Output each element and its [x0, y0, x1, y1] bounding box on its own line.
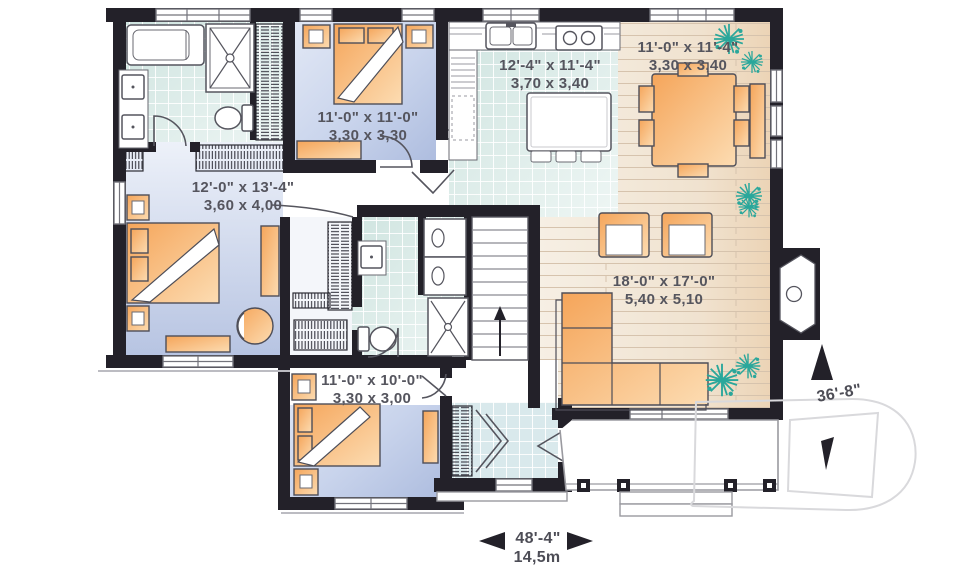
wall-bedroom1-right: [436, 8, 448, 140]
bedroom1-bed-icon: [334, 24, 403, 104]
floor-plan-canvas: 48'-4" 14,5m 36'-8" 12'-0" x 13'-4" 3,60…: [0, 0, 960, 569]
wall-bedroom1-bottom-b: [420, 160, 448, 173]
bath2-shower-icon: [428, 298, 468, 356]
walkin-closet-hatch: [256, 24, 283, 140]
side-door: [412, 170, 454, 193]
bedroom-bottom-label-imperial: 11'-0" x 10'-0": [321, 372, 423, 389]
bath2-vanity-icon: [358, 241, 386, 275]
dimension-arrow-left-icon: [479, 532, 505, 550]
window-dining-right-1: [771, 70, 782, 102]
wall-right-bottom: [770, 333, 783, 420]
master-bedroom-label-imperial: 12'-0" x 13'-4": [192, 179, 295, 196]
dresser-icon: [423, 411, 438, 463]
wall-master-right: [280, 217, 290, 355]
hall-closet2-hatch: [294, 320, 347, 350]
wall-stairs-right: [528, 217, 540, 408]
wall-bath1-bottom-b: [190, 142, 200, 152]
bench-icon: [166, 336, 230, 352]
window-kitchen-top: [483, 9, 539, 21]
armchair-icon: [662, 213, 712, 257]
kitchen-island-icon: [527, 93, 611, 151]
dimension-arrow-right-icon: [567, 532, 593, 550]
stool-icon: [581, 151, 601, 162]
north-arrow-icon: [811, 344, 833, 380]
master-door: [272, 205, 353, 217]
dining-table-icon: [639, 63, 749, 177]
window-dining-right-2: [771, 106, 782, 136]
fireplace-icon: [770, 248, 820, 340]
porch-steps: [620, 492, 732, 516]
bedroom3-bed-icon: [294, 404, 380, 466]
window-bedroom3-bottom: [335, 498, 407, 509]
wall-entry-left: [440, 396, 452, 492]
wall-bath2-bottom-a: [352, 357, 368, 368]
master-bedroom-label-metric: 3,60 x 4,00: [204, 197, 282, 214]
double-vanity-icon: [119, 70, 148, 148]
living-label-imperial: 18'-0" x 17'-0": [613, 273, 716, 290]
entry-stoop: [437, 492, 567, 501]
window-bedroom1-top-left: [300, 9, 332, 21]
stairs-icon: [472, 217, 528, 360]
kitchen-counter-left: [449, 50, 477, 160]
window-dining-right-3: [771, 140, 782, 168]
entry-closet-hatch: [452, 406, 472, 476]
armchair-icon: [599, 213, 649, 257]
wall-bedroom1-bottom-a: [283, 160, 376, 173]
washer-dryer-icon: [424, 219, 466, 295]
bathtub-icon: [127, 25, 204, 65]
window-dining-top: [650, 9, 734, 21]
overall-depth-imperial: 36'-8": [815, 381, 862, 406]
wall-bath2-bottom-b: [404, 357, 466, 368]
overall-width-imperial: 48'-4": [515, 530, 560, 547]
bedroom-top-label-metric: 3,30 x 3,30: [329, 127, 407, 144]
window-entry-bottom: [496, 479, 532, 491]
living-label-metric: 5,40 x 5,10: [625, 291, 703, 308]
wall-hall-top: [357, 205, 540, 217]
dresser-icon: [261, 226, 279, 296]
master-closet-hatch: [196, 145, 288, 171]
stool-icon: [556, 151, 576, 162]
wall-bedroom3-left: [278, 355, 290, 510]
window-master-bottom: [163, 356, 233, 367]
bedroom-bottom-label-metric: 3,30 x 3,00: [333, 390, 411, 407]
overall-width-metric: 14,5m: [514, 549, 561, 566]
wall-bedroom1-left: [283, 8, 295, 160]
porch-deck: [560, 420, 778, 490]
watermark-wedge: [821, 437, 834, 470]
stool-icon: [531, 151, 551, 162]
window-master-left: [114, 182, 125, 224]
kitchen-label-imperial: 12'-4" x 11'-4": [499, 57, 601, 74]
window-bathroom-top: [156, 9, 250, 21]
buffet-icon: [750, 84, 765, 158]
armchair-round-icon: [237, 308, 273, 344]
kitchen-label-metric: 3,70 x 3,40: [511, 75, 589, 92]
kitchen-sink-icon: [486, 23, 536, 49]
master-bed-icon: [127, 223, 219, 303]
shower-icon: [206, 24, 254, 92]
dining-label-metric: 3,30 x 3,40: [649, 57, 727, 74]
linen-closet-hatch: [293, 293, 330, 308]
dining-label-imperial: 11'-0" x 11'-4": [638, 39, 739, 56]
hall-closet-hatch: [328, 222, 352, 310]
bedroom-top-label-imperial: 11'-0" x 11'-0": [318, 109, 419, 126]
cooktop-icon: [556, 26, 602, 50]
window-bedroom1-top-right: [402, 9, 434, 21]
toilet-icon: [215, 105, 253, 131]
